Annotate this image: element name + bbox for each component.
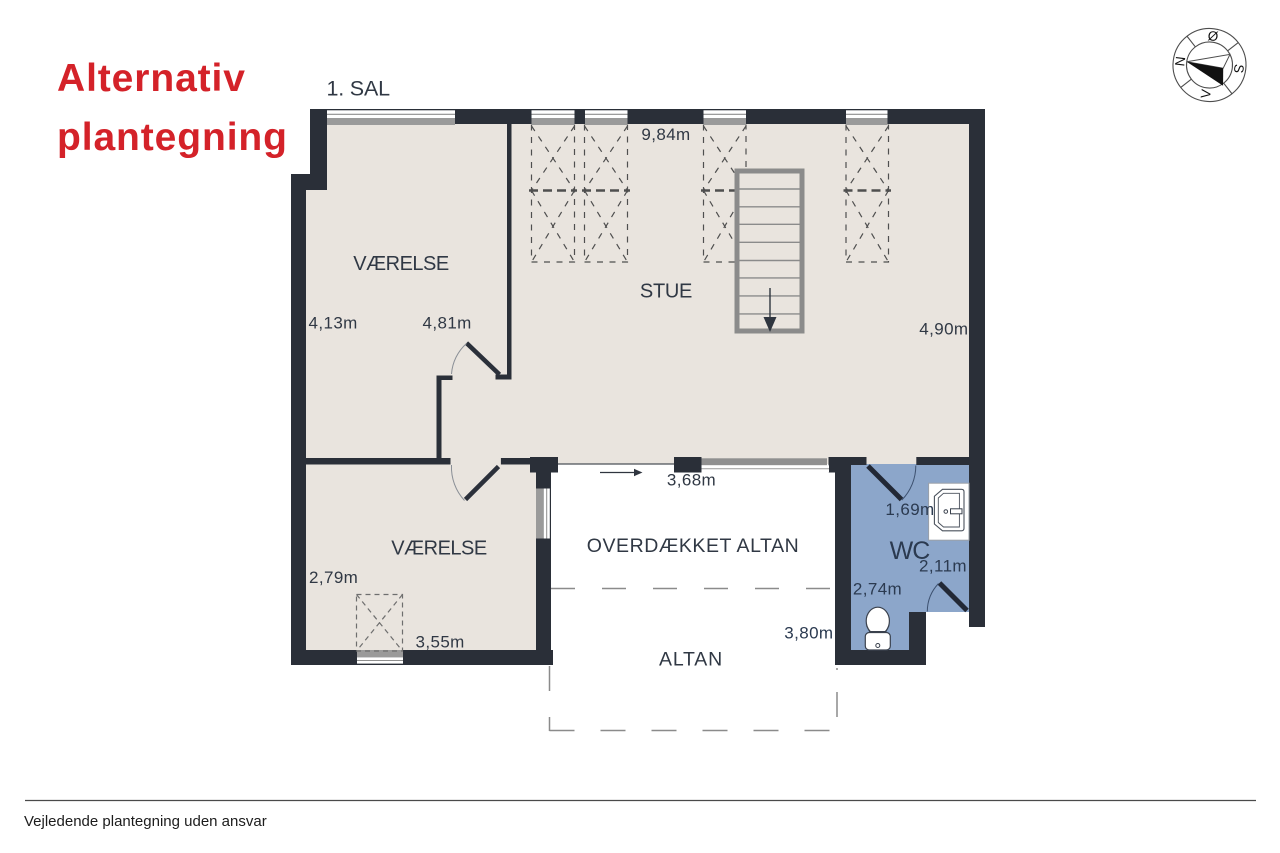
- svg-text:3,68m: 3,68m: [667, 471, 716, 490]
- svg-text:1. SAL: 1. SAL: [327, 77, 391, 101]
- svg-text:2,79m: 2,79m: [309, 568, 358, 587]
- svg-text:2,11m: 2,11m: [919, 557, 967, 576]
- svg-text:N: N: [1172, 56, 1188, 68]
- svg-text:9,84m: 9,84m: [641, 125, 690, 144]
- svg-text:ALTAN: ALTAN: [659, 649, 723, 671]
- svg-text:3,55m: 3,55m: [416, 633, 465, 652]
- svg-text:V: V: [1198, 88, 1214, 99]
- svg-text:3,80m: 3,80m: [784, 624, 833, 643]
- svg-text:1,69m: 1,69m: [885, 500, 934, 519]
- svg-text:4,90m: 4,90m: [919, 320, 968, 339]
- svg-text:VÆRELSE: VÆRELSE: [353, 253, 449, 275]
- svg-text:STUE: STUE: [640, 281, 692, 303]
- svg-text:OVERDÆKKET ALTAN: OVERDÆKKET ALTAN: [587, 535, 800, 557]
- svg-text:VÆRELSE: VÆRELSE: [391, 538, 487, 560]
- svg-text:2,74m: 2,74m: [853, 580, 902, 599]
- svg-text:4,81m: 4,81m: [423, 314, 472, 333]
- svg-text:4,13m: 4,13m: [309, 314, 358, 333]
- svg-text:S: S: [1231, 63, 1247, 74]
